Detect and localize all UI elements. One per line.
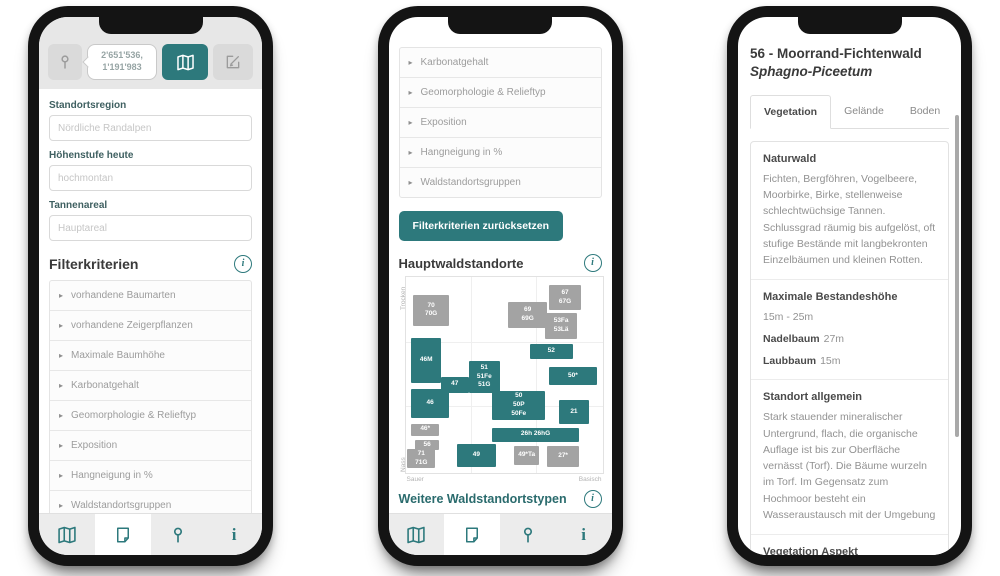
info-icon: i [232, 526, 237, 543]
ecogram-box-53Fa[interactable]: 53Fa53Lä [545, 313, 577, 338]
accordion-label: Maximale Baumhöhe [71, 350, 165, 361]
nav-tab-map[interactable] [389, 514, 445, 555]
nav-tab-document[interactable] [95, 514, 151, 555]
accordion-item-karbonatgehalt[interactable]: ▸Karbonatgehalt [400, 48, 601, 77]
phone-1-notch [99, 17, 203, 34]
tab-boden[interactable]: Boden [897, 95, 953, 129]
ecogram-box-46[interactable]: 46 [411, 389, 448, 418]
accordion-label: Waldstandortsgruppen [71, 500, 171, 511]
ecogram-box-52[interactable]: 52 [530, 344, 573, 360]
chart-info-icon[interactable]: i [584, 254, 602, 272]
chevron-right-icon: ▸ [409, 179, 413, 187]
chevron-right-icon: ▸ [59, 322, 63, 330]
vegetation-card: Naturwald Fichten, Bergföhren, Vogelbeer… [750, 141, 949, 555]
reset-filters-button[interactable]: Filterkriterien zurücksetzen [399, 211, 564, 241]
ecogram-box-26h 26hG[interactable]: 26h 26hG [492, 428, 579, 442]
accordion-label: vorhandene Zeigerpflanzen [71, 320, 193, 331]
chevron-right-icon: ▸ [409, 59, 413, 67]
x-axis-labels: Sauer Basisch [405, 474, 604, 483]
section-title: Standort allgemein [763, 391, 936, 403]
section-text: Fichten, Bergföhren, Vogelbeere, Moorbir… [763, 171, 936, 269]
map-icon [176, 53, 195, 72]
section-bestandeshoehe: Maximale Bestandeshöhe 15m - 25m Nadelba… [751, 279, 948, 379]
ecogram-zone: Trocken Nass 7070G6767G6969G53Fa53Lä46M5… [405, 276, 604, 483]
ecogram-box-50[interactable]: 5050P50Fe [492, 391, 545, 420]
section-title: Maximale Bestandeshöhe [763, 291, 936, 303]
phone-2-screen: ▸Karbonatgehalt ▸Geomorphologie & Relief… [389, 17, 612, 555]
filter-accordion: ▸vorhandene Baumarten ▸vorhandene Zeiger… [49, 280, 252, 521]
ecogram-box-71[interactable]: 7171G [407, 449, 435, 468]
phone-2-frame: ▸Karbonatgehalt ▸Geomorphologie & Relief… [378, 6, 623, 566]
hoehenstufe-input[interactable]: hochmontan [49, 165, 252, 191]
filter-accordion: ▸Karbonatgehalt ▸Geomorphologie & Relief… [399, 47, 602, 198]
tab-gelaende[interactable]: Gelände [831, 95, 897, 129]
accordion-item-baumhoehe[interactable]: ▸Maximale Baumhöhe [50, 340, 251, 370]
chevron-right-icon: ▸ [59, 352, 63, 360]
nav-tab-location[interactable] [500, 514, 556, 555]
ecogram-box-27*[interactable]: 27* [547, 446, 579, 468]
edit-coordinates-button[interactable] [213, 44, 253, 80]
site-form: Standortsregion Nördliche Randalpen Höhe… [39, 89, 262, 241]
tannenareal-input[interactable]: Hauptareal [49, 215, 252, 241]
laubbaum-row: Laubbaum15m [763, 354, 936, 369]
ecogram-box-70[interactable]: 7070G [413, 295, 448, 326]
document-icon [114, 526, 132, 544]
nadelbaum-row: Nadelbaum27m [763, 332, 936, 347]
more-types-header: Weitere Waldstandortstypen i [389, 483, 612, 513]
accordion-label: Waldstandortsgruppen [421, 177, 521, 188]
chevron-right-icon: ▸ [59, 472, 63, 480]
accordion-label: Hangneigung in % [71, 470, 153, 481]
edit-pencil-icon [225, 54, 241, 70]
ecogram-box-21[interactable]: 21 [559, 400, 589, 424]
x-axis-left-label: Sauer [407, 476, 424, 483]
filter-section-header: Filterkriterien i [39, 250, 262, 280]
accordion-item-geomorphologie[interactable]: ▸Geomorphologie & Relieftyp [50, 400, 251, 430]
detail-tabs: Vegetation Gelände Boden [750, 95, 949, 129]
ecogram-box-46*[interactable]: 46* [411, 424, 439, 436]
x-axis-right-label: Basisch [579, 476, 602, 483]
location-pin-icon [169, 526, 187, 544]
locate-me-button[interactable] [48, 44, 82, 80]
ecogram-box-49*Ta[interactable]: 49*Ta [514, 446, 540, 466]
chart-section-header: Hauptwaldstandorte i [389, 249, 612, 276]
accordion-label: Geomorphologie & Relieftyp [71, 410, 196, 421]
location-pin-icon [519, 526, 537, 544]
accordion-item-karbonatgehalt[interactable]: ▸Karbonatgehalt [50, 370, 251, 400]
bottom-nav: i [389, 513, 612, 555]
section-title: Naturwald [763, 153, 936, 165]
info-icon: i [581, 526, 586, 543]
accordion-item-geomorphologie[interactable]: ▸Geomorphologie & Relieftyp [400, 77, 601, 107]
coordinates-chip[interactable]: 2'651'536, 1'191'983 [87, 44, 157, 80]
chevron-right-icon: ▸ [409, 89, 413, 97]
location-pin-icon [57, 54, 73, 70]
ecogram-box-69[interactable]: 6969G [508, 302, 547, 327]
phone-1-frame: 2'651'536, 1'191'983 Standortsregion Nör… [28, 6, 273, 566]
chevron-right-icon: ▸ [409, 149, 413, 157]
accordion-item-hangneigung[interactable]: ▸Hangneigung in % [50, 460, 251, 490]
nav-tab-location[interactable] [151, 514, 207, 555]
chevron-right-icon: ▸ [59, 442, 63, 450]
field-label-standortsregion: Standortsregion [49, 100, 252, 111]
section-standort: Standort allgemein Stark stauender miner… [751, 379, 948, 534]
section-naturwald: Naturwald Fichten, Bergföhren, Vogelbeer… [751, 142, 948, 280]
phone-3-screen: 56 - Moorrand-Fichtenwald Sphagno-Piceet… [738, 17, 961, 555]
more-types-info-icon[interactable]: i [584, 490, 602, 508]
ecogram-box-49[interactable]: 49 [457, 444, 496, 468]
ecogram-box-67[interactable]: 6767G [549, 285, 581, 310]
accordion-label: Exposition [421, 117, 467, 128]
accordion-item-hangneigung[interactable]: ▸Hangneigung in % [400, 137, 601, 167]
page-subtitle-latin: Sphagno-Piceetum [750, 63, 949, 81]
ecogram-box-51[interactable]: 5151Fe51G [469, 361, 501, 392]
tab-vegetation[interactable]: Vegetation [750, 95, 831, 129]
detail-page: 56 - Moorrand-Fichtenwald Sphagno-Piceet… [738, 17, 961, 555]
ecogram-box-46M[interactable]: 46M [411, 338, 441, 383]
accordion-label: Karbonatgehalt [421, 57, 489, 68]
accordion-label: Exposition [71, 440, 117, 451]
chevron-right-icon: ▸ [59, 412, 63, 420]
coordinate-line-1: 2'651'536, [88, 50, 156, 62]
scrollbar[interactable] [955, 115, 959, 437]
field-label-tannenareal: Tannenareal [49, 200, 252, 211]
phone-3-notch [798, 17, 902, 34]
chart-title: Hauptwaldstandorte [399, 256, 524, 271]
nav-tab-info[interactable]: i [206, 514, 262, 555]
nav-tab-map[interactable] [39, 514, 95, 555]
filter-title: Filterkriterien [49, 256, 138, 272]
accordion-label: Hangneigung in % [421, 147, 503, 158]
mockup-stage: 2'651'536, 1'191'983 Standortsregion Nör… [0, 0, 1000, 566]
chevron-right-icon: ▸ [59, 502, 63, 510]
phone-2-notch [448, 17, 552, 34]
phone-3-frame: 56 - Moorrand-Fichtenwald Sphagno-Piceet… [727, 6, 972, 566]
standortsregion-input[interactable]: Nördliche Randalpen [49, 115, 252, 141]
filter-info-icon[interactable]: i [234, 255, 252, 273]
page-title: 56 - Moorrand-Fichtenwald [750, 45, 949, 63]
accordion-item-waldstandortsgruppen[interactable]: ▸Waldstandortsgruppen [400, 167, 601, 197]
bottom-nav: i [39, 513, 262, 555]
document-icon [463, 526, 481, 544]
accordion-item-exposition[interactable]: ▸Exposition [400, 107, 601, 137]
map-select-button[interactable] [162, 44, 208, 80]
section-vegetation-aspekt: Vegetation Aspekt Moosreich, mit Torfmoo… [751, 534, 948, 555]
accordion-item-exposition[interactable]: ▸Exposition [50, 430, 251, 460]
section-title: Vegetation Aspekt [763, 546, 936, 555]
nav-tab-document[interactable] [444, 514, 500, 555]
ecogram-chart: 7070G6767G6969G53Fa53Lä46M525151Fe51G475… [405, 276, 604, 474]
ecogram-box-50*[interactable]: 50* [549, 367, 596, 385]
accordion-item-zeigerpflanzen[interactable]: ▸vorhandene Zeigerpflanzen [50, 310, 251, 340]
chevron-right-icon: ▸ [59, 382, 63, 390]
nav-tab-info[interactable]: i [556, 514, 612, 555]
more-types-title: Weitere Waldstandortstypen [399, 492, 567, 506]
chevron-right-icon: ▸ [59, 292, 63, 300]
phone-1-screen: 2'651'536, 1'191'983 Standortsregion Nör… [39, 17, 262, 555]
field-label-hoehenstufe: Höhenstufe heute [49, 150, 252, 161]
accordion-label: Karbonatgehalt [71, 380, 139, 391]
height-range-row: 15m - 25m [763, 310, 936, 325]
accordion-label: vorhandene Baumarten [71, 290, 176, 301]
section-text: Stark stauender mineralischer Untergrund… [763, 409, 936, 523]
accordion-label: Geomorphologie & Relieftyp [421, 87, 546, 98]
map-icon [57, 525, 77, 545]
chevron-right-icon: ▸ [409, 119, 413, 127]
accordion-item-baumarten[interactable]: ▸vorhandene Baumarten [50, 281, 251, 310]
map-icon [406, 525, 426, 545]
coordinate-line-2: 1'191'983 [88, 62, 156, 74]
